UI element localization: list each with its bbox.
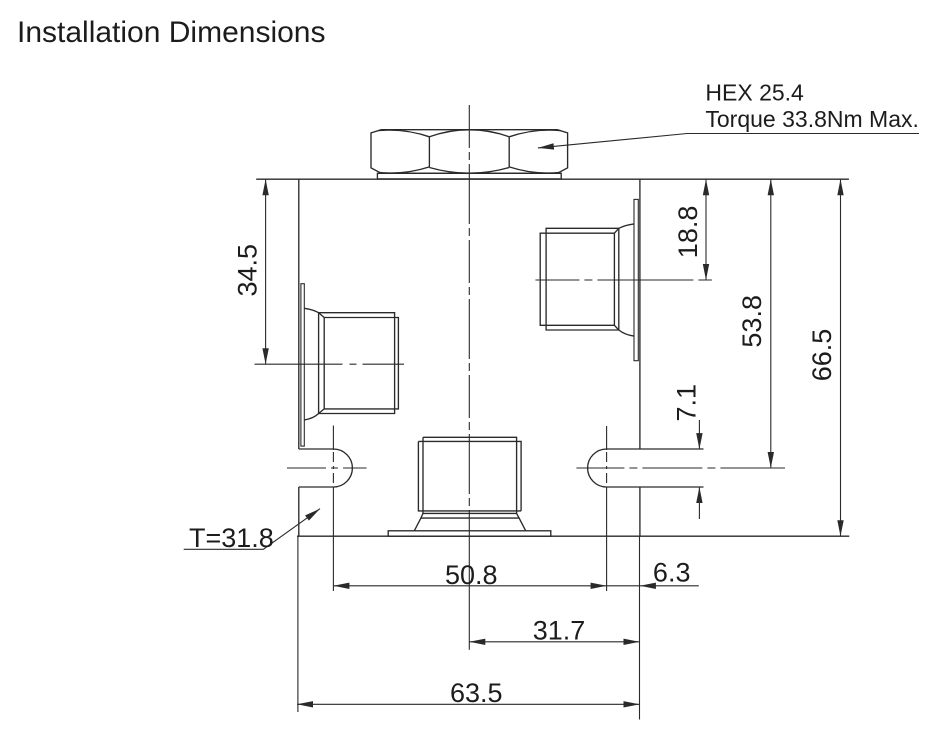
svg-text:53.8: 53.8 xyxy=(737,295,767,348)
svg-text:6.3: 6.3 xyxy=(653,558,691,588)
svg-text:18.8: 18.8 xyxy=(673,206,703,259)
svg-text:Torque 33.8Nm Max.: Torque 33.8Nm Max. xyxy=(705,106,918,132)
svg-text:31.7: 31.7 xyxy=(533,616,586,646)
svg-text:50.8: 50.8 xyxy=(445,560,498,590)
svg-text:7.1: 7.1 xyxy=(672,384,702,422)
svg-text:63.5: 63.5 xyxy=(450,678,503,708)
svg-text:66.5: 66.5 xyxy=(807,329,837,382)
svg-text:T=31.8: T=31.8 xyxy=(189,523,274,553)
svg-text:34.5: 34.5 xyxy=(233,244,263,297)
svg-text:Installation Dimensions: Installation Dimensions xyxy=(17,16,325,49)
svg-text:HEX 25.4: HEX 25.4 xyxy=(705,80,804,106)
